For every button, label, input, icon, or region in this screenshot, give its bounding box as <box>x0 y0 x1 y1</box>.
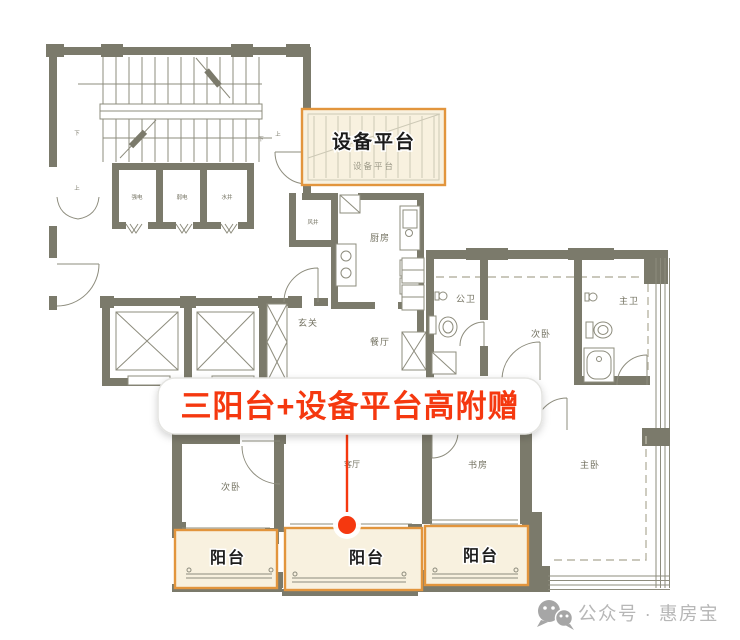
sink-icon <box>589 293 597 301</box>
bay-dashed-line <box>550 436 646 560</box>
elevator-2 <box>197 306 267 378</box>
annotation: 三阳台+设备平台高附赠 <box>158 378 542 539</box>
master-bedroom: 主卧 <box>520 398 670 592</box>
water-shaft-label: 水井 <box>221 193 233 201</box>
bathroom-door <box>460 322 484 346</box>
shaft-vent <box>176 224 192 233</box>
study-label: 书房 <box>468 459 488 470</box>
air-shaft-label: 风井 <box>307 218 319 226</box>
sink-icon <box>439 292 447 300</box>
equipment-platform-subtitle: 设备平台 <box>353 161 395 171</box>
bedroom-door <box>502 342 540 380</box>
weak-electric-shaft-label: 弱电 <box>176 193 188 201</box>
study-door <box>432 432 458 458</box>
master-bathroom: 主卫 <box>574 284 650 385</box>
public-bath-label: 公卫 <box>456 294 476 304</box>
strong-electric-shaft-label: 强电 <box>131 193 143 201</box>
floor-plan: 下 下 上 上 强电 弱电 水井 设备平台 设备平台 <box>0 0 740 640</box>
balcony-1: 阳台 <box>175 530 277 588</box>
window <box>430 520 518 524</box>
master-label: 主卧 <box>580 459 600 470</box>
watermark: 公众号 · 惠房宝 <box>537 600 719 630</box>
kitchen-label: 厨房 <box>370 232 390 243</box>
double-door <box>57 197 99 219</box>
bedroom-bottom: 次卧 <box>172 434 286 538</box>
study: 书房 <box>422 426 518 524</box>
stair-up-label: 上 <box>74 184 80 192</box>
lobby-door <box>57 264 99 306</box>
stair-down-label: 下 <box>258 136 264 143</box>
stair-up-label: 上 <box>275 130 281 138</box>
shaft-vent <box>221 224 237 233</box>
wechat-icon <box>537 600 574 630</box>
bathtub <box>584 348 614 382</box>
entry-label: 玄关 <box>298 317 318 328</box>
shaft-vent <box>126 224 142 233</box>
floor-plan-drawing: 下 下 上 上 强电 弱电 水井 设备平台 设备平台 <box>0 0 740 640</box>
equipment-platform: 设备平台 设备平台 <box>302 109 445 185</box>
dining-label: 餐厅 <box>370 336 390 347</box>
master-bath-label: 主卫 <box>619 295 639 306</box>
narrow-shaft <box>267 304 287 382</box>
balcony-3: 阳台 <box>425 526 528 585</box>
elevator-lobby: 玄关 <box>49 226 328 386</box>
equipment-platform-title: 设备平台 <box>332 130 416 153</box>
bedroom-bottom-label: 次卧 <box>221 481 241 492</box>
toilet <box>429 316 436 334</box>
banner-text: 三阳台+设备平台高附赠 <box>180 389 519 424</box>
watermark-text: 公众号 · 惠房宝 <box>578 603 719 624</box>
balcony-2-label: 阳台 <box>349 548 385 567</box>
window-band-right <box>642 258 670 588</box>
utility-shafts: 强电 弱电 水井 <box>112 163 254 233</box>
balcony-1-label: 阳台 <box>210 548 246 567</box>
stair-down-label: 下 <box>74 130 80 137</box>
toilet <box>586 322 593 338</box>
window-band-bottom <box>548 576 670 590</box>
elevator-1 <box>102 306 192 378</box>
pointer-dot <box>338 516 356 534</box>
bedroom-top-label: 次卧 <box>531 328 551 339</box>
staircase: 下 下 上 上 <box>46 44 311 219</box>
stair-direction-arrow <box>129 130 147 149</box>
balcony-3-label: 阳台 <box>463 546 499 565</box>
stove <box>336 244 356 286</box>
